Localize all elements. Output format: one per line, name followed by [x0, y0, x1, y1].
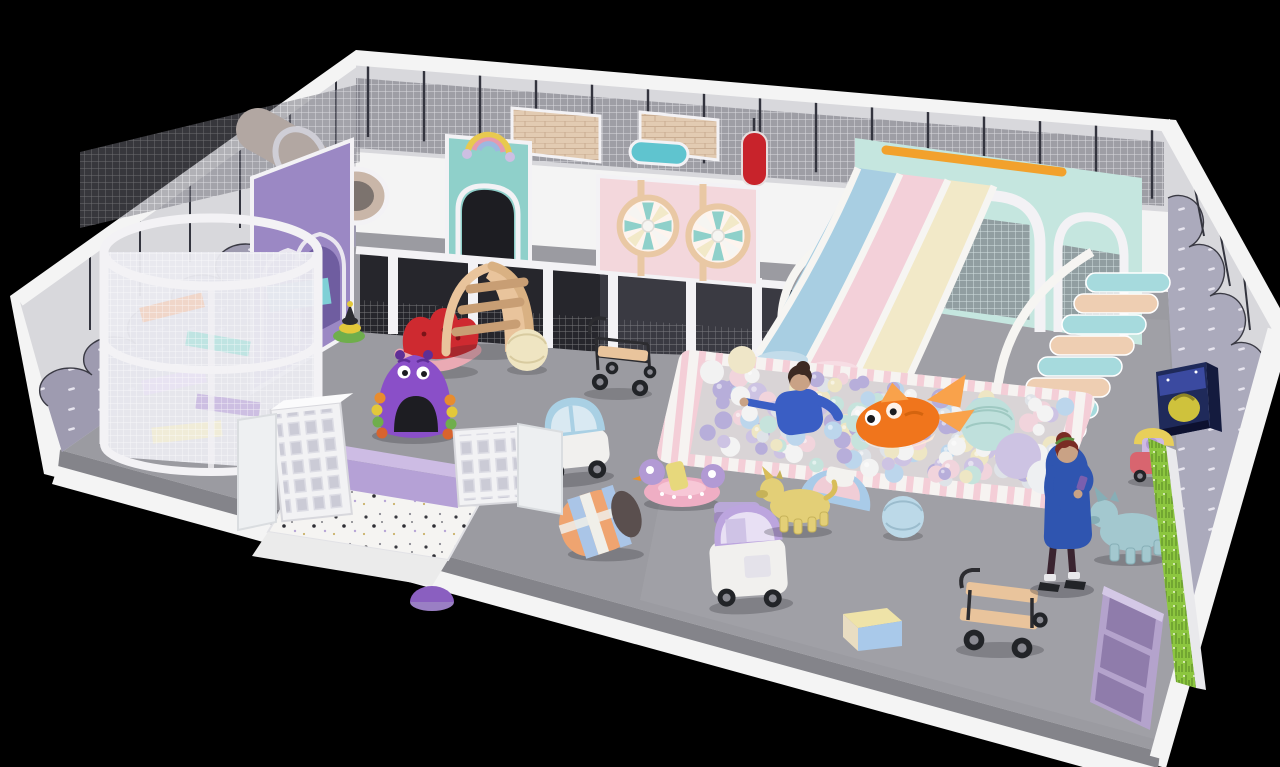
entry-white-wall-left [238, 414, 276, 530]
punch-bag [742, 132, 767, 186]
scene-svg [0, 0, 1280, 767]
play-ball-cream [506, 329, 548, 375]
entry-white-wall [518, 424, 562, 514]
pink-windmill-panel [598, 176, 758, 286]
soft-block [843, 608, 902, 651]
arcade-box [1156, 362, 1222, 438]
padded-roller [629, 140, 688, 166]
play-ball-blue [882, 496, 924, 541]
playground-render [0, 0, 1280, 767]
shoe-cube-shelf-right [453, 426, 524, 506]
